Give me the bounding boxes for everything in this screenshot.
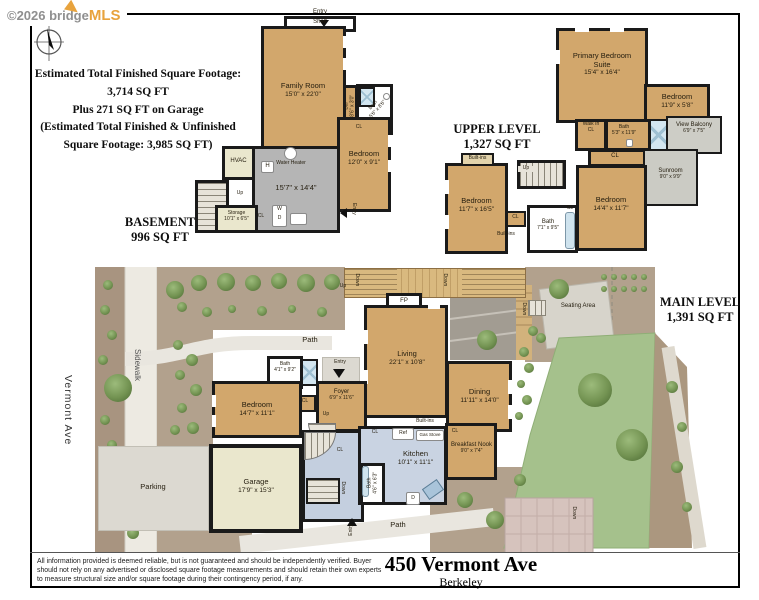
upper-bedroom-right-label: Bedroom 11'9" x 5'8" (652, 93, 702, 109)
window (445, 180, 449, 194)
gas-stove-label: Gas Stove (416, 432, 444, 437)
basement-bedroom-label: Bedroom 12'0" x 9'1" (340, 150, 388, 166)
seating-area-label: Seating Area (553, 303, 603, 310)
sidewalk-label: Sidewalk (133, 335, 142, 395)
cl-label: CL (507, 215, 524, 221)
window (388, 160, 392, 172)
cl-label: CL (296, 399, 314, 405)
address-street: 450 Vermont Ave (356, 553, 566, 575)
upper-bath-center-label: Bath 7'1" x 9'5" (532, 219, 564, 232)
cl-label: CL (366, 430, 384, 436)
foyer-label: Foyer 6'9" x 11'6" (319, 389, 364, 402)
ref-label: Ref (392, 431, 414, 437)
down-label: Down (520, 296, 526, 322)
h-marker-label: H (261, 163, 274, 170)
address-city: Berkeley (356, 575, 566, 590)
basement-entry-side-label: Entry (350, 196, 356, 222)
up-label: Up (232, 191, 248, 197)
address-block: 450 Vermont Ave Berkeley (356, 553, 566, 590)
summary-line: 3,714 SQ FT (34, 84, 242, 102)
utility-dims-label: 15'7" x 14'4" (270, 184, 322, 193)
built-ins-label: Built-ins (463, 156, 492, 162)
cl-label: CL (332, 448, 348, 454)
window (556, 50, 560, 64)
cl-label: CL (562, 206, 578, 212)
walk-in-cl-label: Walk In CL (580, 122, 602, 134)
cl-label: CL (352, 125, 366, 131)
window (388, 135, 392, 147)
window (212, 395, 216, 407)
water-heater-icon (284, 147, 297, 160)
up-label: Up (518, 166, 534, 172)
summary-line: Square Footage: 3,985 SQ FT) (34, 137, 242, 155)
water-heater-label: Water Heater (275, 161, 307, 167)
main-title: MAIN LEVEL 1,391 SQ FT (655, 295, 745, 325)
path-front-label: Path (292, 336, 328, 345)
up-label: Up (318, 412, 334, 418)
bath-front-label: Bath 4'1" x 9'2" (270, 362, 300, 374)
upper-title: UPPER LEVEL 1,327 SQ FT (452, 122, 542, 152)
upper-bedroom-center-label: Bedroom 14'4" x 11'7" (585, 196, 637, 212)
entry-arrow-icon (340, 208, 347, 218)
cl-label: CL (254, 214, 268, 220)
laundry-sink-icon (290, 213, 307, 225)
entry-arrow-icon (333, 369, 345, 378)
deck-stairs-right (462, 269, 525, 297)
upper-bath-top-label: Bath 5'3" x 11'9" (609, 125, 639, 137)
built-ins-label: Built-ins (494, 232, 518, 238)
washer-label: W (272, 207, 287, 213)
seating-steps (528, 300, 546, 316)
summary-line: Estimated Total Finished Square Footage: (34, 66, 242, 84)
basement-title: BASEMENT 996 SQ FT (118, 215, 202, 245)
parking-label: Parking (123, 483, 183, 492)
kitchen-label: Kitchen 10'1" x 11'1" (388, 450, 443, 466)
mls-brand-text: MLS (89, 7, 121, 24)
window (575, 28, 589, 32)
deck-down-label: Down (353, 268, 359, 292)
hall-down-stairs (306, 478, 340, 504)
view-balcony-label: View Balcony 6'9" x 7'5" (671, 122, 717, 135)
window (508, 405, 512, 419)
summary-line: Plus 271 SQ FT on Garage (34, 102, 242, 120)
bar-label: Bar 8'6" x 3'0" (344, 86, 356, 126)
window (445, 215, 449, 229)
bath-rear-label: Bath 4'6" x 6'3" (367, 465, 379, 501)
disclaimer-text: All information provided is deemed relia… (37, 557, 383, 584)
fireplace-label: FP (390, 298, 418, 305)
built-ins-label: Built-ins (410, 419, 440, 425)
storage-label: Storage 10'1" x 6'5" (217, 211, 256, 223)
bathtub-icon (565, 212, 575, 249)
primary-suite-label: Primary Bedroom Suite 15'4" x 16'4" (570, 52, 634, 77)
street-label: Vermont Ave (62, 355, 74, 465)
upper-bedroom-left-label: Bedroom 11'7" x 16'5" (450, 197, 503, 213)
window (212, 415, 216, 427)
window (343, 58, 347, 70)
entry-front-label: Entry (325, 360, 355, 366)
cl-label: CL (447, 429, 463, 435)
dining-label: Dining 11'11" x 14'0" (452, 388, 507, 404)
breakfast-nook-label: Breakfast Nook 9'0" x 7'4" (449, 442, 494, 455)
cl-label: CL (605, 153, 625, 160)
deck-up-label: Up (334, 284, 352, 290)
sqft-summary: Estimated Total Finished Square Footage:… (34, 66, 242, 155)
window (343, 36, 347, 48)
bridgemls-logo: ©2026 bridgeMLS (5, 6, 127, 26)
basement-entry-top-label: Entry (305, 9, 335, 16)
dishwasher-label: D (406, 496, 420, 502)
window (364, 330, 368, 344)
down-label: Down (339, 476, 345, 500)
window (610, 28, 624, 32)
family-room-label: Family Room 15'0" x 22'0" (270, 82, 336, 98)
hvac-label: HVAC (224, 158, 253, 165)
window (428, 305, 440, 309)
down-label: Down (570, 500, 576, 526)
garage-label: Garage 17'9" x 15'3" (228, 478, 284, 494)
dryer-label: D (272, 216, 287, 222)
sunroom-label: Sunroom 9'0" x 9'9" (649, 168, 692, 181)
entry-rear-label: Entry (349, 517, 355, 543)
living-label: Living 22'1" x 10'8" (380, 350, 434, 366)
toilet-icon (626, 139, 633, 147)
compass-icon (30, 25, 68, 69)
main-bedroom-label: Bedroom 14'7" x 11'1" (228, 401, 286, 417)
path-rear-label: Path (380, 521, 416, 530)
summary-line: (Estimated Total Finished & Unfinished (34, 119, 242, 137)
shelf-label: Shelf (292, 19, 348, 26)
deck-down-label: Down (441, 268, 447, 292)
window (508, 380, 512, 394)
